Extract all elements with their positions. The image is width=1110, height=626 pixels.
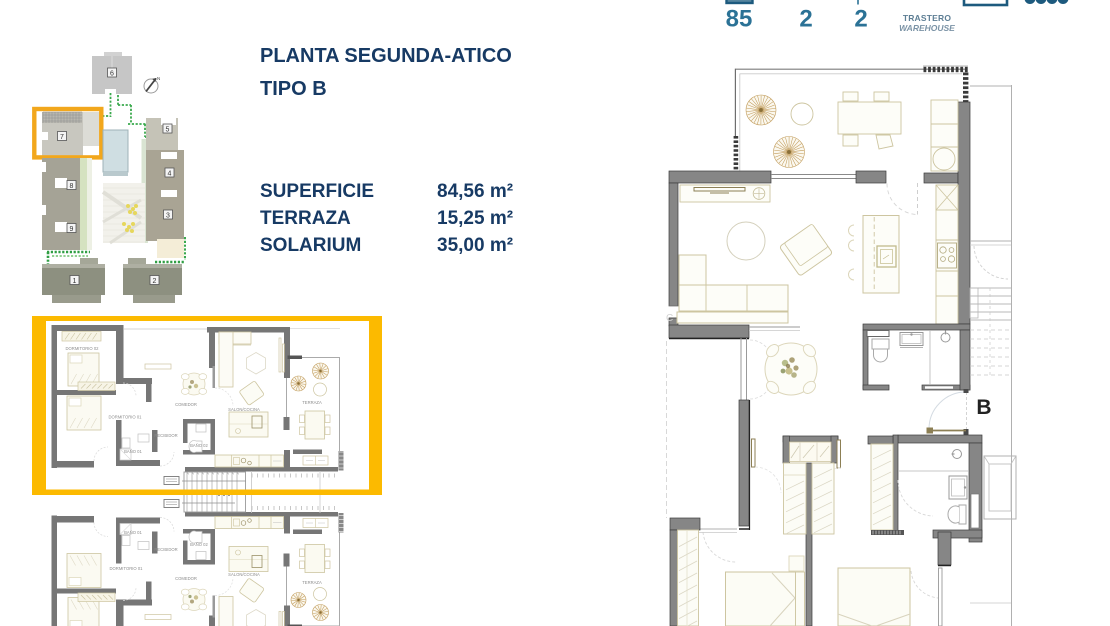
svg-text:SOLARIUM: SOLARIUM bbox=[260, 235, 361, 256]
svg-text:SALON/COCINA: SALON/COCINA bbox=[228, 407, 260, 412]
svg-text:15,25 m²: 15,25 m² bbox=[437, 208, 513, 229]
svg-text:SALON/COCINA: SALON/COCINA bbox=[228, 572, 260, 577]
svg-text:1: 1 bbox=[73, 278, 77, 285]
svg-text:RECIBIDOR: RECIBIDOR bbox=[154, 547, 177, 552]
svg-text:6: 6 bbox=[110, 71, 114, 78]
svg-text:COMEDOR: COMEDOR bbox=[175, 402, 197, 407]
svg-text:DORMITORIO 02: DORMITORIO 02 bbox=[66, 346, 100, 351]
svg-text:COMEDOR: COMEDOR bbox=[175, 576, 197, 581]
svg-text:TRASTERO: TRASTERO bbox=[903, 13, 952, 23]
svg-text:85: 85 bbox=[726, 6, 753, 33]
svg-text:B: B bbox=[976, 396, 991, 419]
svg-text:DORMITORIO 01: DORMITORIO 01 bbox=[109, 415, 143, 420]
svg-text:N: N bbox=[157, 76, 160, 81]
svg-text:9: 9 bbox=[70, 226, 74, 233]
svg-text:TIPO B: TIPO B bbox=[260, 78, 327, 100]
svg-text:2: 2 bbox=[153, 278, 157, 285]
svg-text:35,00 m²: 35,00 m² bbox=[437, 235, 513, 256]
svg-text:BAÑO 02: BAÑO 02 bbox=[190, 542, 208, 547]
svg-text:RECIBIDOR: RECIBIDOR bbox=[154, 433, 177, 438]
svg-text:DORMITORIO 01: DORMITORIO 01 bbox=[110, 566, 144, 571]
svg-text:TERRAZA: TERRAZA bbox=[302, 400, 322, 405]
svg-text:2: 2 bbox=[799, 6, 812, 33]
svg-text:WAREHOUSE: WAREHOUSE bbox=[899, 23, 955, 33]
svg-text:4: 4 bbox=[168, 171, 172, 178]
svg-text:SUPERFICIE: SUPERFICIE bbox=[260, 181, 374, 202]
svg-text:TERRAZA: TERRAZA bbox=[260, 208, 351, 229]
svg-text:3: 3 bbox=[166, 213, 170, 220]
svg-text:C: C bbox=[666, 313, 673, 324]
svg-text:2: 2 bbox=[854, 6, 867, 33]
svg-text:8: 8 bbox=[70, 183, 74, 190]
svg-text:84,56 m²: 84,56 m² bbox=[437, 181, 513, 202]
svg-text:TERRAZA: TERRAZA bbox=[302, 580, 322, 585]
svg-text:BAÑO 01: BAÑO 01 bbox=[124, 530, 142, 535]
svg-text:5: 5 bbox=[166, 127, 170, 134]
svg-text:BAÑO 01: BAÑO 01 bbox=[124, 449, 142, 454]
svg-text:7: 7 bbox=[60, 134, 64, 141]
svg-text:BAÑO 02: BAÑO 02 bbox=[190, 443, 208, 448]
svg-text:PLANTA SEGUNDA-ATICO: PLANTA SEGUNDA-ATICO bbox=[260, 45, 512, 67]
